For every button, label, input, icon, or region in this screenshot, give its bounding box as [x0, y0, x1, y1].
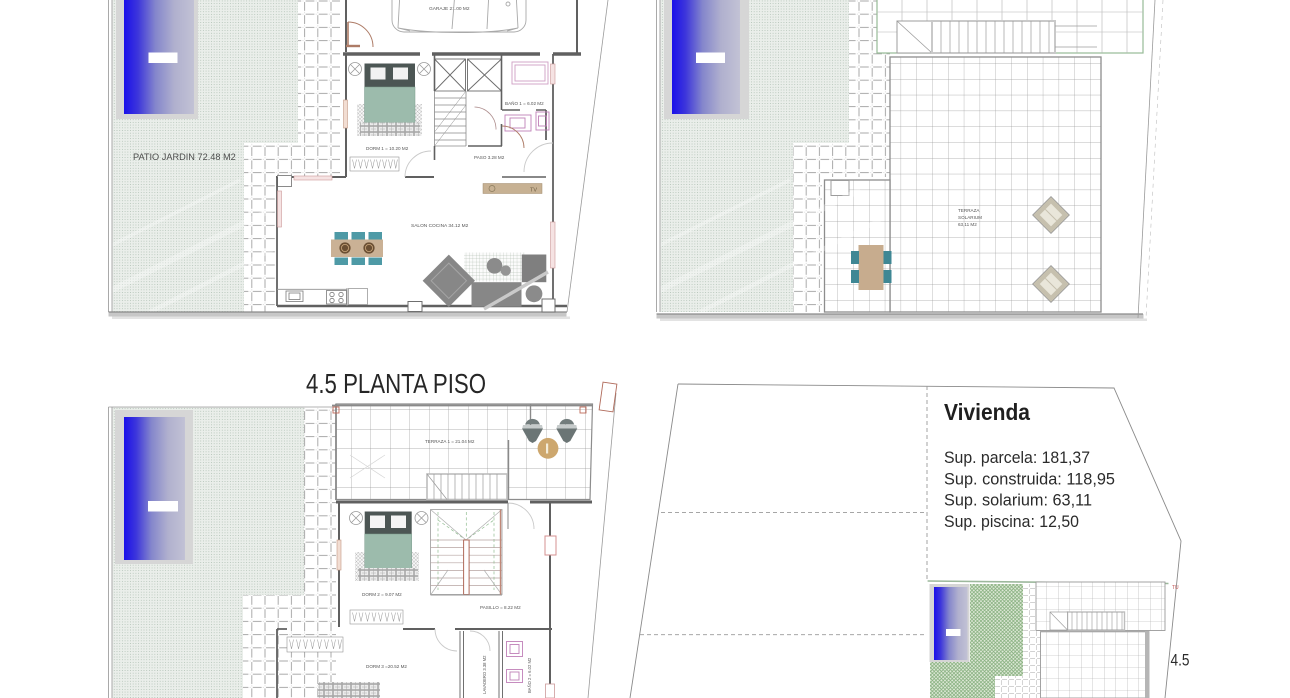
svg-text:SOLARIUM: SOLARIUM [958, 215, 982, 220]
svg-text:LAVADERO 3.38 M2: LAVADERO 3.38 M2 [482, 655, 487, 694]
svg-text:BAÑO 2 = 6.02 M2: BAÑO 2 = 6.02 M2 [527, 657, 532, 693]
svg-text:4.5: 4.5 [1171, 652, 1190, 670]
svg-text:Sup. parcela: 181,37: Sup. parcela: 181,37 [944, 448, 1090, 467]
svg-text:TERRAZA: TERRAZA [958, 208, 980, 213]
svg-text:DORM 1 = 10.20 M2: DORM 1 = 10.20 M2 [366, 146, 409, 151]
svg-text:TV: TV [530, 188, 537, 194]
svg-text:63,11 M2: 63,11 M2 [958, 222, 977, 227]
svg-text:DORM 3 =20.52 M2: DORM 3 =20.52 M2 [366, 664, 407, 669]
svg-text:GARAJE 21.00 M2: GARAJE 21.00 M2 [429, 6, 470, 12]
svg-text:DORM 2 = 9.07 M2: DORM 2 = 9.07 M2 [362, 592, 402, 597]
svg-text:TERRAZA 1 = 21.04 M2: TERRAZA 1 = 21.04 M2 [425, 439, 475, 444]
svg-text:Vivienda: Vivienda [944, 399, 1030, 425]
svg-text:PATIO JARDIN 72.48 M2: PATIO JARDIN 72.48 M2 [133, 152, 236, 162]
svg-text:BAÑO 1 = 6.02 M2: BAÑO 1 = 6.02 M2 [505, 100, 544, 106]
svg-text:Sup. solarium: 63,11: Sup. solarium: 63,11 [944, 491, 1092, 510]
svg-text:4.5 PLANTA PISO: 4.5 PLANTA PISO [306, 368, 486, 399]
svg-text:Sup. construida: 118,95: Sup. construida: 118,95 [944, 469, 1115, 488]
svg-text:PASO 3.28 M2: PASO 3.28 M2 [474, 155, 505, 160]
svg-text:SALON COCINA 34.12 M2: SALON COCINA 34.12 M2 [411, 223, 469, 229]
svg-text:PASILLO = 8.22 M2: PASILLO = 8.22 M2 [480, 605, 521, 610]
svg-text:Sup. piscina: 12,50: Sup. piscina: 12,50 [944, 512, 1079, 531]
svg-text:TU: TU [1172, 585, 1179, 591]
svg-text:I: I [545, 441, 549, 458]
